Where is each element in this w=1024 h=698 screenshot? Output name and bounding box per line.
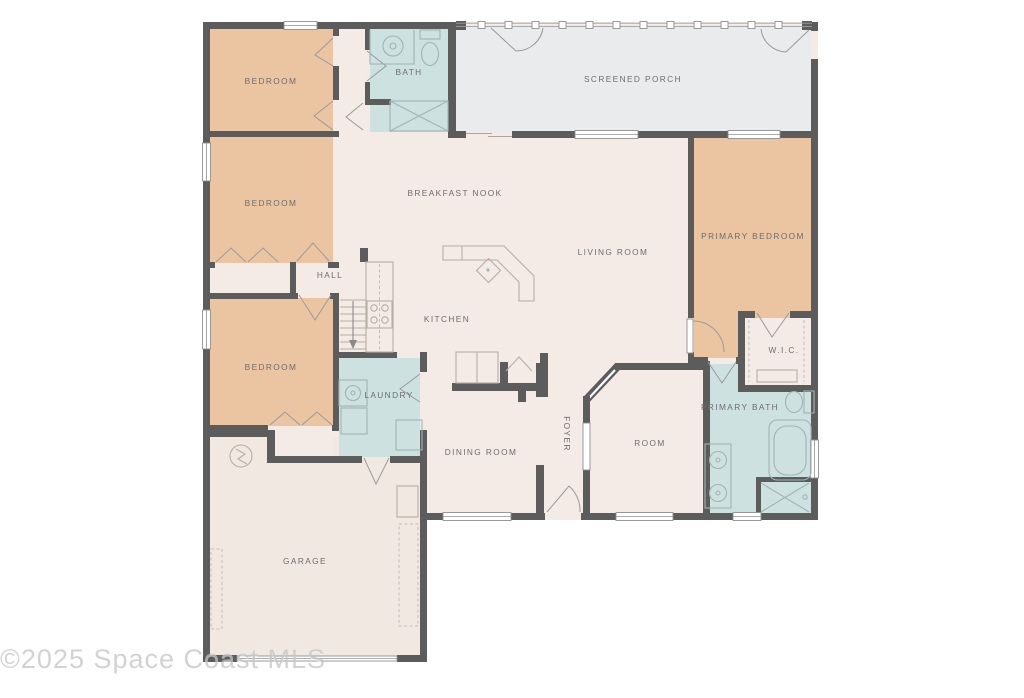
label-wic: W.I.C. xyxy=(769,345,800,355)
label-bedroom-2: BEDROOM xyxy=(245,198,298,208)
label-breakfast-nook: BREAKFAST NOOK xyxy=(407,188,502,198)
mls-watermark: ©2025 Space Coast MLS xyxy=(0,644,326,675)
label-room: ROOM xyxy=(634,438,665,448)
label-bedroom-3: BEDROOM xyxy=(245,362,298,372)
floor-plan-page: BEDROOM BATH SCREENED PORCH BEDROOM BREA… xyxy=(0,0,1024,698)
label-hall: HALL xyxy=(317,270,343,280)
room-bath xyxy=(370,28,448,132)
label-laundry: LAUNDRY xyxy=(364,390,413,400)
label-living-room: LIVING ROOM xyxy=(578,247,649,257)
door-primary-bedroom-leaf xyxy=(687,319,693,353)
label-bedroom-1: BEDROOM xyxy=(245,76,298,86)
floor-plan-drawing: BEDROOM BATH SCREENED PORCH BEDROOM BREA… xyxy=(0,0,1024,698)
closet-strip-bedroom3 xyxy=(270,431,333,456)
label-primary-bedroom: PRIMARY BEDROOM xyxy=(701,231,805,241)
label-foyer: FOYER xyxy=(562,416,572,452)
label-primary-bath: PRIMARY BATH xyxy=(701,402,779,412)
label-kitchen: KITCHEN xyxy=(424,314,470,324)
label-screened-porch: SCREENED PORCH xyxy=(584,74,682,84)
label-garage: GARAGE xyxy=(283,556,327,566)
label-dining-room: DINING ROOM xyxy=(445,447,518,457)
room-garage xyxy=(210,437,420,656)
label-bath: BATH xyxy=(395,67,422,77)
